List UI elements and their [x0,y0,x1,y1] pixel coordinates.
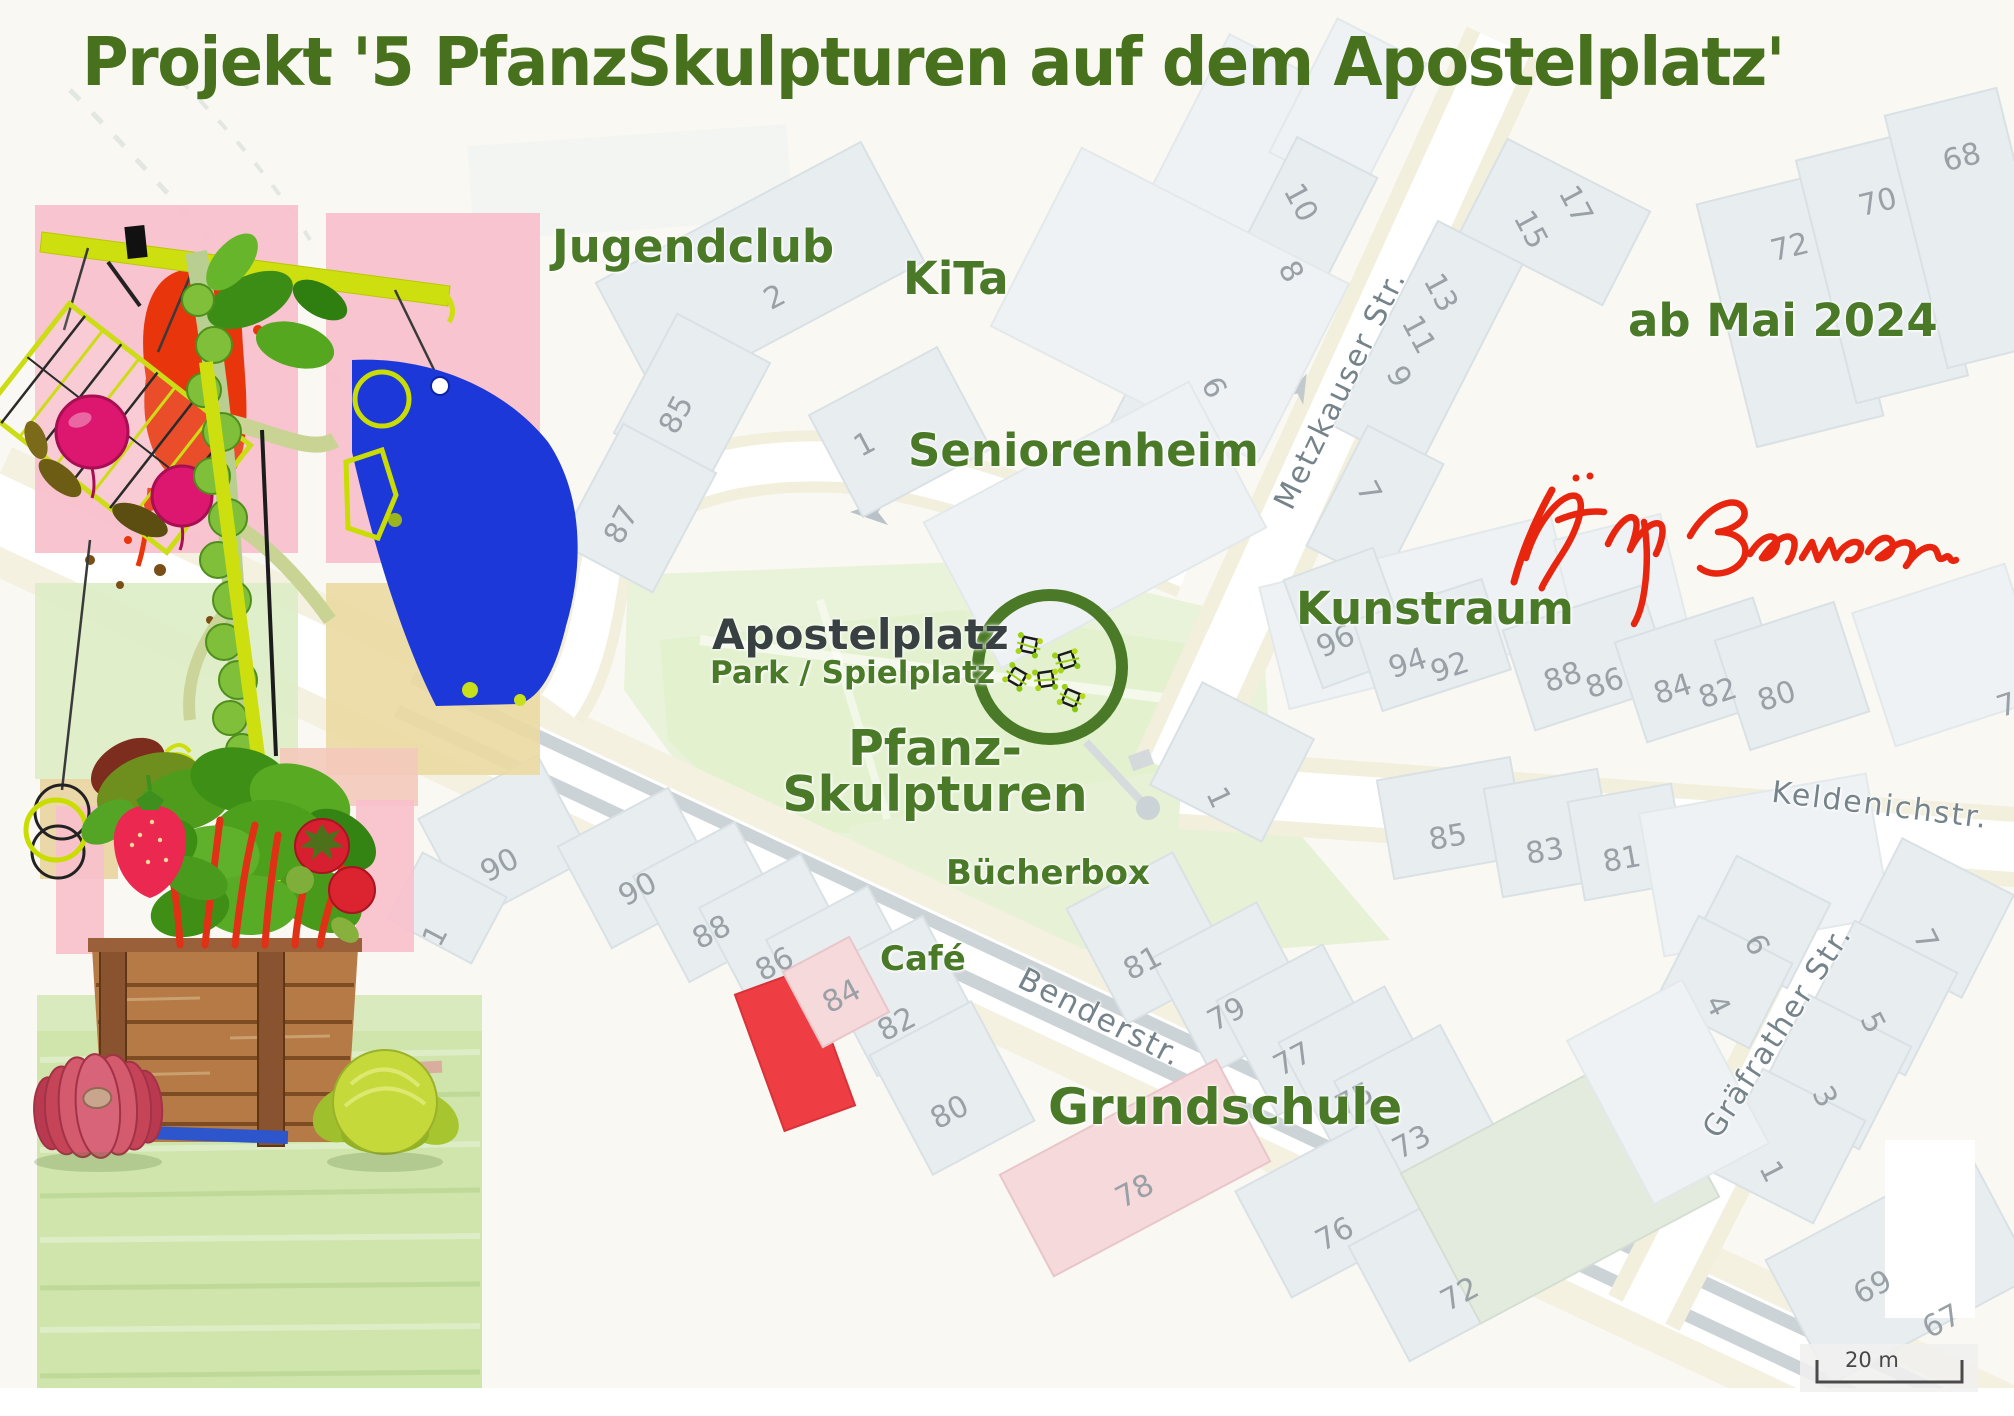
label-cafe: Café [880,942,966,976]
cabbage-shadow [327,1152,443,1172]
label-seniorenheim: Seniorenheim [908,428,1259,473]
pumpkin-shadow [34,1152,162,1172]
page-title: Projekt '5 PfanzSkulpturen auf dem Apost… [82,26,1784,100]
label-jugendclub: Jugendclub [552,224,834,269]
scale-label: 20 m [1845,1350,1899,1371]
black-bottle [124,225,147,259]
house-number: 83 [1524,834,1567,870]
house-number: 70 [1856,184,1900,222]
house-number: 68 [1940,139,1984,177]
label-kunstraum: Kunstraum [1296,586,1574,631]
label-buecherbox: Bücherbox [946,856,1150,890]
house-number: 72 [1768,229,1812,267]
label-apostelplatz: Apostelplatz [712,614,1009,656]
poster: 7270681081517131196285871796949288868482… [0,0,2014,1416]
label-park-spielplatz: Park / Spielplatz [710,658,995,689]
house-number: 85 [1427,820,1470,856]
label-grundschule: Grundschule [1048,1082,1402,1132]
label-skulpturen: Skulpturen [780,770,1090,819]
bottom-white-band [0,1388,2014,1416]
white-patch [1885,1140,1975,1318]
house-number: 81 [1601,842,1644,878]
label-kita: KiTa [903,256,1009,301]
label-date: ab Mai 2024 [1628,298,1938,343]
